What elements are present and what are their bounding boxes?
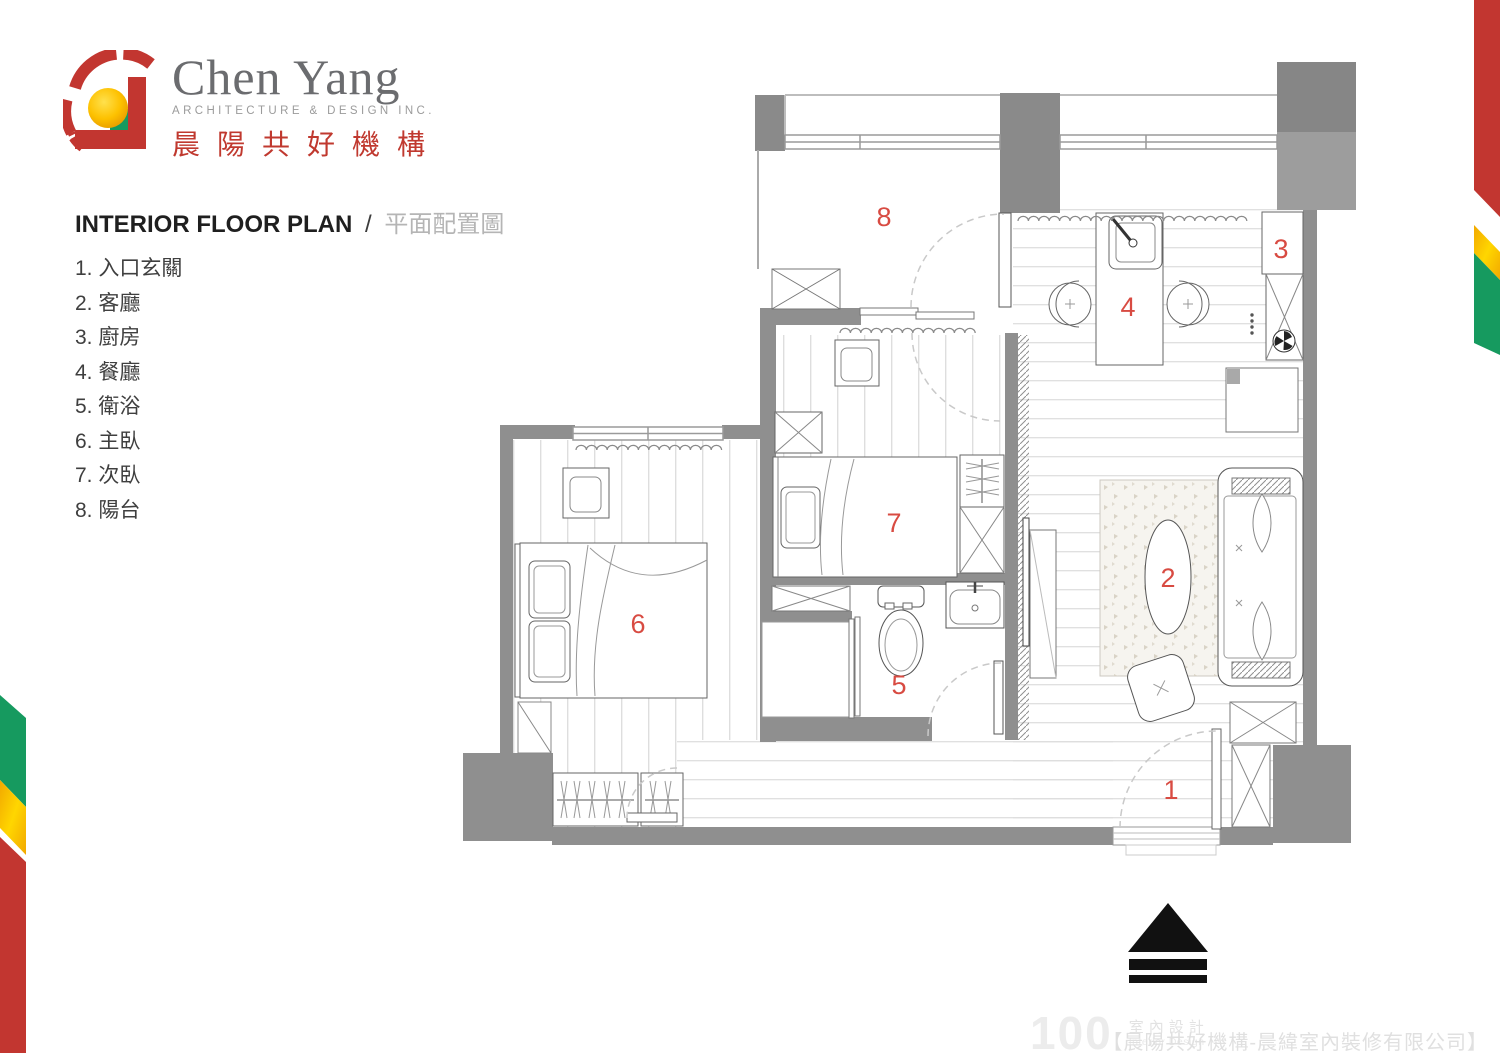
ribbon-right-icon: [1473, 0, 1500, 360]
room-label-2: 2: [1160, 563, 1175, 593]
pocket-door: [849, 619, 854, 718]
room-label-3: 3: [1273, 234, 1288, 264]
room-label-5: 5: [891, 670, 906, 700]
sliding-door: [860, 308, 974, 319]
curtain: [840, 328, 975, 333]
balcony-door: [999, 213, 1011, 307]
bedroom-door: [627, 813, 677, 822]
room-label-4: 4: [1120, 292, 1135, 322]
tv: [1023, 518, 1029, 646]
sofa: [1218, 468, 1303, 686]
room-label-7: 7: [886, 508, 901, 538]
room-label-6: 6: [630, 609, 645, 639]
brand-number: 100: [1030, 1012, 1113, 1054]
footer-credit: 【晨陽共好機構-晨緯室內裝修有限公司】: [1102, 1026, 1488, 1055]
room-label-8: 8: [876, 202, 891, 232]
bathroom: [762, 582, 1004, 736]
ribbon-left-icon: [0, 690, 27, 1055]
presentation-page: Chen Yang ARCHITECTURE & DESIGN INC. 晨陽共…: [0, 0, 1500, 1061]
balcony: [758, 150, 1011, 319]
closet: [762, 622, 852, 717]
cabinet-detail: [1227, 369, 1240, 384]
threshold: [1113, 827, 1220, 845]
toilet: [878, 586, 924, 676]
room-label-1: 1: [1163, 775, 1178, 805]
floor-plan: 1 2 3 4 5 6 7 8: [0, 0, 1500, 1061]
north-arrow-icon: [1120, 895, 1220, 990]
bathroom-door: [994, 661, 1003, 734]
entry-door: [1212, 729, 1221, 829]
bathroom-sink: [946, 582, 1004, 628]
